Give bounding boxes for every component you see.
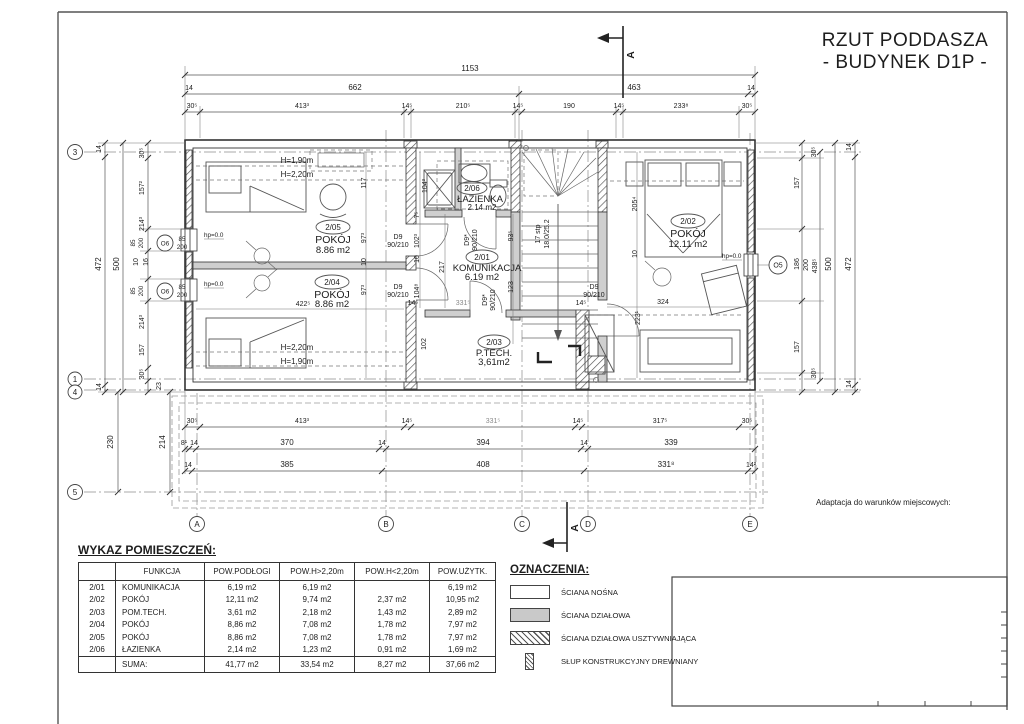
room-area: 2.14 m2 [468, 203, 497, 212]
svg-text:O6: O6 [161, 241, 170, 248]
svg-text:14⁵: 14⁵ [573, 418, 584, 425]
legend-title: OZNACZENIA: [510, 564, 710, 576]
svg-text:14²: 14² [746, 462, 757, 469]
room-area: 6.19 m2 [465, 272, 499, 283]
svg-text:90/210: 90/210 [583, 292, 605, 299]
svg-text:23: 23 [156, 382, 163, 390]
legend-item: ŚCIANA NOŚNA [510, 585, 710, 599]
svg-text:186: 186 [794, 258, 801, 270]
svg-text:408: 408 [476, 460, 490, 469]
dims-left: 14 472 14 500 30⁵ 157² 214³ 10 16 214³ 1… [94, 140, 188, 495]
svg-text:85: 85 [178, 236, 186, 243]
svg-text:117: 117 [361, 177, 368, 188]
room-area: 8.86 m2 [315, 299, 349, 310]
svg-text:D9*: D9* [482, 294, 489, 306]
svg-text:90/210: 90/210 [387, 242, 409, 249]
svg-text:438⁵: 438⁵ [812, 259, 819, 274]
table-row: 2/01KOMUNIKACJA 6,19 m26,19 m2 6,19 m2 [79, 581, 496, 594]
svg-text:200: 200 [177, 292, 188, 299]
stairs-label: 17 stp [535, 224, 542, 243]
svg-text:85: 85 [178, 284, 186, 291]
svg-text:205⁴: 205⁴ [632, 197, 639, 212]
svg-text:217: 217 [439, 261, 446, 273]
svg-text:8¹: 8¹ [181, 440, 188, 447]
svg-text:331⁵: 331⁵ [486, 418, 501, 425]
svg-text:200: 200 [138, 237, 145, 248]
svg-text:D9: D9 [590, 284, 599, 291]
svg-text:H=1,90m: H=1,90m [281, 357, 314, 366]
svg-text:14⁵: 14⁵ [402, 103, 413, 110]
svg-text:14: 14 [747, 85, 755, 92]
svg-text:10: 10 [361, 258, 368, 266]
svg-text:14: 14 [96, 383, 103, 391]
svg-text:317⁵: 317⁵ [653, 418, 668, 425]
svg-text:214³: 214³ [139, 216, 146, 231]
legend: OZNACZENIA: ŚCIANA NOŚNA ŚCIANA DZIAŁOWA… [510, 564, 710, 677]
svg-text:233⁸: 233⁸ [674, 103, 689, 110]
room-no: 2/05 [325, 223, 341, 232]
svg-text:90/210: 90/210 [490, 289, 497, 311]
room-no: 2/02 [680, 217, 696, 226]
legend-item: ŚCIANA DZIAŁOWA USZTYWNIAJĄCA [510, 631, 710, 645]
svg-text:O5: O5 [773, 263, 782, 270]
svg-text:14⁵: 14⁵ [513, 103, 524, 110]
svg-text:157: 157 [794, 177, 801, 189]
svg-text:C: C [519, 520, 525, 529]
svg-text:370: 370 [280, 438, 294, 447]
room-no: 2/03 [486, 338, 502, 347]
room-no: 2/04 [324, 278, 340, 287]
svg-text:D9*: D9* [464, 234, 471, 246]
svg-text:190: 190 [563, 103, 575, 110]
svg-text:214³: 214³ [139, 314, 146, 329]
table-row: 2/05POKÓJ 8,86 m27,08 m2 1,78 m27,97 m2 [79, 631, 496, 644]
window-mark-o5: O5 [757, 256, 787, 274]
svg-text:85: 85 [130, 287, 137, 295]
room-label-205: 2/05 POKÓJ 8.86 m2 [315, 220, 351, 256]
svg-text:30⁵: 30⁵ [139, 369, 146, 380]
svg-text:14⁵: 14⁵ [576, 300, 587, 307]
section-marker-bottom: A [542, 502, 581, 552]
svg-text:1153: 1153 [461, 64, 479, 73]
room-area: 8.86 m2 [316, 245, 350, 256]
room-no: 2/06 [464, 184, 480, 193]
room-no: 2/01 [474, 253, 490, 262]
room-area: 3,61m2 [478, 357, 510, 368]
svg-text:97³: 97³ [361, 232, 368, 243]
section-letter: A [569, 524, 581, 532]
dims-top: 1153 14 662 463 14 30⁵ 413³ 14⁵ 210⁵ 14⁵… [182, 64, 758, 140]
svg-text:104³: 104³ [422, 178, 429, 193]
svg-text:30⁵: 30⁵ [139, 148, 146, 159]
svg-text:123: 123 [508, 281, 515, 293]
svg-text:30⁵: 30⁵ [187, 418, 198, 425]
svg-text:hp=0.0: hp=0.0 [204, 281, 224, 288]
svg-text:157: 157 [794, 341, 801, 353]
room-label-206: 2/06 ŁAZIENKA 2.14 m2 [457, 182, 504, 213]
table-row: 2/03POM.TECH. 3,61 m22,18 m2 1,43 m22,89… [79, 606, 496, 619]
svg-text:157: 157 [139, 344, 146, 356]
svg-text:463: 463 [627, 83, 641, 92]
svg-text:14: 14 [846, 380, 853, 388]
svg-text:385: 385 [280, 460, 294, 469]
drawing-title: RZUT PODDASZA - BUDYNEK D1P - [790, 30, 1020, 74]
svg-text:157²: 157² [139, 180, 146, 195]
title-line2: - BUDYNEK D1P - [790, 52, 1020, 74]
svg-text:H=1,90m: H=1,90m [281, 156, 314, 165]
svg-text:104⁸: 104⁸ [414, 284, 421, 299]
room-table: FUNKCJA POW.PODŁOGI POW.H>2,20m POW.H<2,… [78, 562, 496, 673]
svg-text:hp=0.0: hp=0.0 [204, 232, 224, 239]
svg-text:85: 85 [130, 239, 137, 247]
table-header-row: FUNKCJA POW.PODŁOGI POW.H>2,20m POW.H<2,… [79, 563, 496, 581]
svg-text:394: 394 [476, 438, 490, 447]
svg-text:14: 14 [96, 145, 103, 153]
svg-text:472: 472 [844, 257, 853, 271]
svg-text:D9: D9 [394, 284, 403, 291]
drawing-sheet: 2/05 POKÓJ 8.86 m2 2/04 POKÓJ 8.86 m2 2/… [0, 0, 1024, 724]
section-letter: A [625, 51, 637, 59]
svg-text:200: 200 [177, 244, 188, 251]
svg-text:210⁵: 210⁵ [456, 103, 471, 110]
stiffening-wall-swatch [510, 631, 550, 645]
window-mark-o6-2: 85 200 O6 85 200 [130, 283, 188, 299]
svg-text:14: 14 [190, 440, 198, 447]
svg-text:B: B [383, 520, 388, 529]
svg-text:200: 200 [138, 285, 145, 296]
svg-text:H=2,20m: H=2,20m [281, 343, 314, 352]
svg-text:413³: 413³ [295, 418, 310, 425]
svg-text:A: A [194, 520, 200, 529]
partition-wall-swatch [510, 608, 550, 622]
svg-text:102³: 102³ [414, 233, 421, 248]
svg-text:331⁵: 331⁵ [456, 300, 471, 307]
svg-text:10: 10 [632, 250, 639, 258]
svg-text:10: 10 [133, 258, 140, 266]
svg-text:14: 14 [580, 440, 588, 447]
svg-text:14: 14 [378, 440, 386, 447]
svg-text:14⁵: 14⁵ [408, 300, 419, 307]
svg-text:10: 10 [414, 255, 421, 263]
legend-item: ŚCIANA DZIAŁOWA [510, 608, 710, 622]
svg-text:230: 230 [106, 435, 115, 449]
svg-text:339: 339 [664, 438, 678, 447]
svg-text:30⁵: 30⁵ [742, 103, 753, 110]
svg-text:93⁵: 93⁵ [508, 231, 515, 242]
table-sum-row: SUMA: 41,77 m233,54 m2 8,27 m237,66 m2 [79, 657, 496, 673]
table-row: 2/06ŁAZIENKA 2,14 m21,23 m2 0,91 m21,69 … [79, 644, 496, 657]
room-schedule: WYKAZ POMIESZCZEŃ: FUNKCJA POW.PODŁOGI P… [78, 543, 462, 673]
window-mark-o6-1: 85 200 O6 85 200 [130, 235, 188, 251]
svg-text:472: 472 [94, 257, 103, 271]
svg-text:3: 3 [73, 148, 78, 157]
title-block [672, 577, 1007, 706]
load-bearing-wall-swatch [510, 585, 550, 599]
table-row: 2/02POKÓJ 12,11 m29,74 m2 2,37 m210,95 m… [79, 594, 496, 607]
room-label-202: 2/02 POKÓJ 12.11 m2 [669, 214, 708, 250]
svg-text:30⁵: 30⁵ [742, 418, 753, 425]
dims-right: 30⁵ 157 186 200 438⁵ 157 30⁵ 500 14 472 … [755, 140, 860, 395]
svg-text:14: 14 [184, 462, 192, 469]
timber-post-swatch [525, 653, 534, 670]
svg-text:223¹: 223¹ [635, 310, 642, 325]
eaves-outline [172, 396, 763, 508]
svg-text:422⁵: 422⁵ [296, 301, 311, 308]
svg-text:30⁵: 30⁵ [811, 147, 818, 158]
svg-text:5: 5 [73, 488, 78, 497]
room-area: 12.11 m2 [669, 239, 708, 250]
legend-item: SŁUP KONSTRUKCYJNY DREWNIANY [510, 654, 710, 668]
svg-text:14⁵: 14⁵ [402, 418, 413, 425]
svg-text:30⁵: 30⁵ [187, 103, 198, 110]
svg-text:4: 4 [73, 388, 78, 397]
svg-text:90/210: 90/210 [387, 292, 409, 299]
svg-text:D: D [585, 520, 591, 529]
room-label-204: 2/04 POKÓJ 8.86 m2 [314, 275, 350, 310]
svg-text:500: 500 [824, 257, 833, 271]
svg-text:16: 16 [143, 258, 150, 266]
svg-text:O6: O6 [161, 289, 170, 296]
svg-text:413³: 413³ [295, 103, 310, 110]
svg-text:hp=0.0: hp=0.0 [722, 253, 742, 260]
svg-text:662: 662 [348, 83, 362, 92]
svg-text:214: 214 [158, 435, 167, 449]
svg-text:1: 1 [73, 375, 78, 384]
stairs-label: 18.0/25.2 [544, 219, 551, 248]
table-row: 2/04POKÓJ 8,86 m27,08 m2 1,78 m27,97 m2 [79, 619, 496, 632]
room-label-203: 2/03 P.TECH. 3,61m2 [476, 335, 512, 368]
svg-text:90/210: 90/210 [472, 229, 479, 251]
svg-text:102: 102 [421, 338, 428, 350]
svg-text:14: 14 [846, 143, 853, 151]
interior-walls [193, 148, 607, 383]
svg-text:324: 324 [657, 299, 669, 306]
svg-text:7⁵: 7⁵ [414, 212, 421, 219]
svg-text:H=2,20m: H=2,20m [281, 170, 314, 179]
table-title: WYKAZ POMIESZCZEŃ: [78, 543, 462, 557]
adaptation-note: Adaptacja do warunków miejscowych: [816, 498, 951, 507]
svg-text:14⁵: 14⁵ [614, 103, 625, 110]
title-line1: RZUT PODDASZA [790, 30, 1020, 52]
svg-text:500: 500 [112, 257, 121, 271]
svg-text:97³: 97³ [361, 284, 368, 295]
svg-text:E: E [747, 520, 752, 529]
svg-text:331⁸: 331⁸ [658, 460, 675, 469]
svg-text:30⁵: 30⁵ [811, 368, 818, 379]
svg-text:D9: D9 [394, 234, 403, 241]
svg-text:200: 200 [803, 259, 810, 271]
svg-text:14: 14 [185, 85, 193, 92]
